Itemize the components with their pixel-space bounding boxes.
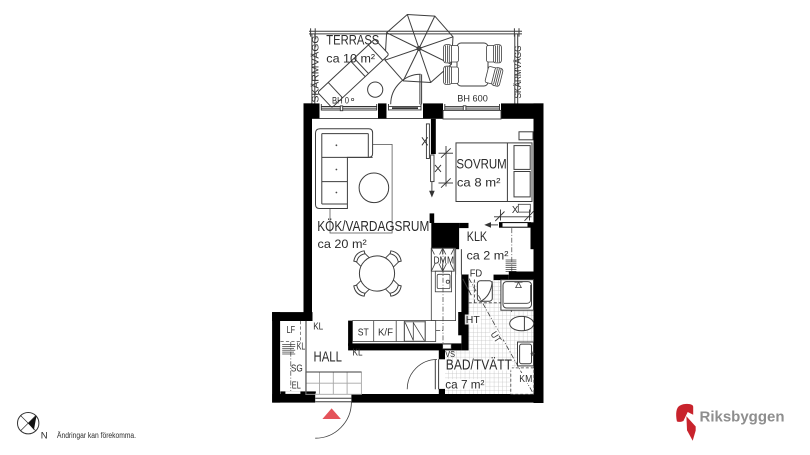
svg-text:VS: VS [445,350,455,359]
svg-text:ca 20 m²: ca 20 m² [318,237,367,251]
svg-text:BAD/TVÄTT: BAD/TVÄTT [446,357,512,374]
svg-text:KL: KL [297,342,306,353]
svg-text:HALL: HALL [314,350,342,366]
svg-text:X: X [512,204,519,216]
svg-text:K/F: K/F [378,327,393,338]
svg-text:DM: DM [434,255,447,266]
svg-text:KL: KL [353,346,363,358]
svg-text:FD: FD [470,268,483,279]
svg-text:KLK: KLK [467,228,488,244]
svg-text:KÖK/VARDAGSRUM: KÖK/VARDAGSRUM [317,217,429,235]
svg-text:TERRASS: TERRASS [326,33,379,48]
svg-text:SG: SG [291,363,303,374]
svg-text:SOVRUM: SOVRUM [456,155,506,171]
svg-text:ca 2 m²: ca 2 m² [467,248,509,262]
svg-text:EL: EL [292,381,301,392]
svg-text:ca 8 m²: ca 8 m² [457,175,501,189]
svg-text:KL: KL [313,321,323,333]
svg-text:M: M [447,255,454,266]
svg-text:BH 600: BH 600 [457,93,488,103]
svg-text:BH 0: BH 0 [332,96,349,106]
svg-text:KM: KM [519,374,532,385]
svg-text:LF: LF [287,325,296,336]
svg-text:Ändringar kan förekomma.: Ändringar kan förekomma. [57,431,136,440]
svg-text:SKÄRMVÄGG: SKÄRMVÄGG [513,46,524,99]
svg-text:ca 10 m²: ca 10 m² [326,52,375,66]
svg-text:ca 7 m²: ca 7 m² [445,378,484,392]
svg-text:N: N [41,430,48,441]
svg-text:Riksbyggen: Riksbyggen [700,408,785,425]
svg-text:ST: ST [358,327,369,338]
svg-text:HT: HT [466,315,480,326]
